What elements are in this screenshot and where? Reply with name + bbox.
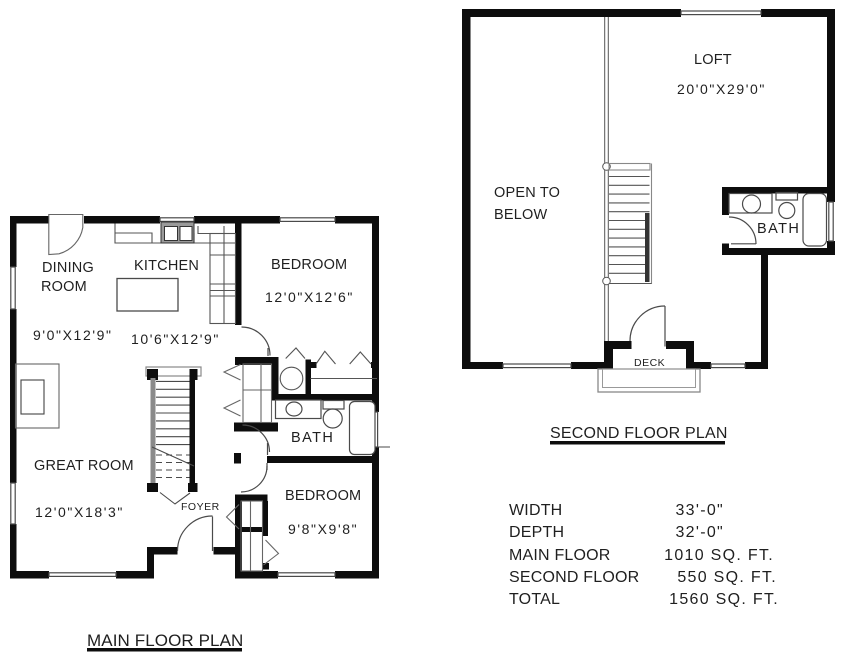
svg-text:12'0"X18'3": 12'0"X18'3" bbox=[35, 504, 124, 520]
svg-text:OPEN TO: OPEN TO bbox=[494, 185, 560, 201]
svg-text:1560 SQ. FT.: 1560 SQ. FT. bbox=[669, 591, 779, 608]
svg-text:DINING: DINING bbox=[42, 260, 94, 276]
svg-text:TOTAL: TOTAL bbox=[509, 591, 560, 608]
svg-text:KITCHEN: KITCHEN bbox=[134, 258, 199, 274]
svg-text:MAIN FLOOR: MAIN FLOOR bbox=[509, 547, 611, 564]
svg-text:SECOND FLOOR PLAN: SECOND FLOOR PLAN bbox=[550, 425, 728, 442]
svg-text:FOYER: FOYER bbox=[181, 501, 220, 513]
svg-text:MAIN FLOOR PLAN: MAIN FLOOR PLAN bbox=[87, 631, 243, 650]
svg-text:10'6"X12'9": 10'6"X12'9" bbox=[131, 331, 220, 347]
svg-text:ROOM: ROOM bbox=[41, 279, 87, 295]
svg-text:33'-0": 33'-0" bbox=[675, 502, 724, 519]
svg-text:9'0"X12'9": 9'0"X12'9" bbox=[33, 327, 113, 343]
svg-text:12'0"X12'6": 12'0"X12'6" bbox=[265, 289, 354, 305]
svg-text:BEDROOM: BEDROOM bbox=[271, 257, 347, 273]
svg-text:32'-0": 32'-0" bbox=[675, 524, 724, 541]
svg-text:WIDTH: WIDTH bbox=[509, 502, 562, 519]
svg-text:1010 SQ. FT.: 1010 SQ. FT. bbox=[664, 547, 774, 564]
svg-text:BELOW: BELOW bbox=[494, 207, 547, 223]
svg-text:BATH: BATH bbox=[291, 430, 334, 446]
svg-text:LOFT: LOFT bbox=[694, 52, 732, 68]
svg-text:GREAT ROOM: GREAT ROOM bbox=[34, 458, 134, 474]
svg-text:550 SQ. FT.: 550 SQ. FT. bbox=[677, 569, 777, 586]
svg-text:20'0"X29'0": 20'0"X29'0" bbox=[677, 81, 766, 97]
svg-text:BATH: BATH bbox=[757, 221, 800, 237]
svg-text:DECK: DECK bbox=[634, 357, 665, 369]
svg-text:9'8"X9'8": 9'8"X9'8" bbox=[288, 521, 358, 537]
svg-text:SECOND FLOOR: SECOND FLOOR bbox=[509, 569, 639, 586]
svg-text:BEDROOM: BEDROOM bbox=[285, 488, 361, 504]
svg-text:DEPTH: DEPTH bbox=[509, 524, 564, 541]
